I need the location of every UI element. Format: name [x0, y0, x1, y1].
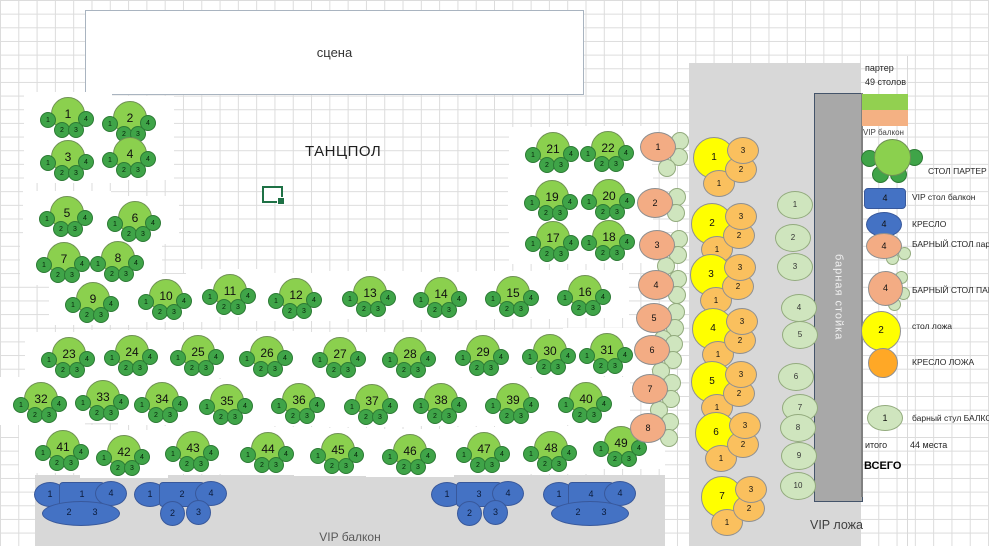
parter-seat[interactable]: 1 — [96, 450, 112, 466]
parter-seat[interactable]: 4 — [451, 397, 467, 413]
parter-seat[interactable]: 4 — [595, 289, 611, 305]
parter-seat[interactable]: 4 — [78, 111, 94, 127]
parter-seat[interactable]: 1 — [268, 293, 284, 309]
parter-seat[interactable]: 4 — [619, 234, 635, 250]
parter-seat[interactable]: 4 — [237, 398, 253, 414]
vip-balcony-seat[interactable]: 2 — [457, 501, 482, 526]
vip-balcony-seat[interactable]: 3 — [483, 500, 508, 525]
legend-item-label: КРЕСЛО ЛОЖА — [912, 358, 974, 367]
parter-seat[interactable]: 1 — [104, 350, 120, 366]
parter-seat[interactable]: 4 — [240, 288, 256, 304]
parter-seat[interactable]: 4 — [74, 256, 90, 272]
parter-seat[interactable]: 4 — [145, 215, 161, 231]
stage-label: сцена — [317, 46, 352, 59]
parter-seat[interactable]: 1 — [485, 398, 501, 414]
parter-seat[interactable]: 4 — [382, 398, 398, 414]
bench-seat-number: 3 — [597, 508, 611, 522]
parter-seat[interactable]: 4 — [103, 296, 119, 312]
bench-seat-number: 3 — [88, 508, 102, 522]
bar-table[interactable]: 5 — [636, 303, 672, 333]
parter-seat[interactable]: 4 — [596, 396, 612, 412]
parter-seat[interactable]: 1 — [41, 352, 57, 368]
parter-seat[interactable]: 4 — [420, 351, 436, 367]
active-cell-selection[interactable] — [262, 186, 283, 203]
bench-seat-number: 2 — [62, 508, 76, 522]
parter-seat[interactable]: 1 — [558, 397, 574, 413]
lodge-chair[interactable]: 3 — [727, 137, 759, 164]
parter-seat[interactable]: 1 — [342, 291, 358, 307]
parter-seat[interactable]: 1 — [199, 399, 215, 415]
parter-seat[interactable]: 1 — [382, 449, 398, 465]
parter-seat[interactable]: 1 — [382, 352, 398, 368]
legend-lodge-table-icon: 2 — [861, 311, 901, 351]
parter-seat[interactable]: 4 — [306, 292, 322, 308]
parter-seat[interactable]: 1 — [35, 445, 51, 461]
parter-seat[interactable]: 1 — [557, 290, 573, 306]
vip-balcony-seat[interactable]: 3 — [186, 500, 211, 525]
legend-item-label: стол ложа — [912, 322, 952, 331]
parter-seat[interactable]: 4 — [350, 351, 366, 367]
parter-seat[interactable]: 4 — [79, 351, 95, 367]
parter-seat[interactable]: 1 — [525, 236, 541, 252]
vip-balcony-bench[interactable] — [551, 501, 629, 526]
vip-lodge-caption: VIP ложа — [810, 519, 863, 532]
parter-seat[interactable]: 4 — [140, 151, 156, 167]
parter-seat[interactable]: 1 — [134, 397, 150, 413]
parter-seat[interactable]: 4 — [172, 396, 188, 412]
bench-seat-number: 2 — [571, 508, 585, 522]
lodge-bar-stool[interactable]: 1 — [777, 191, 813, 219]
parter-seat[interactable]: 1 — [102, 152, 118, 168]
legend-grand-total-label: ВСЕГО — [864, 461, 901, 472]
parter-seat[interactable]: 4 — [134, 449, 150, 465]
legend-lodge-chair-icon — [868, 348, 898, 378]
parter-seat[interactable]: 1 — [13, 397, 29, 413]
parter-seat[interactable]: 1 — [202, 289, 218, 305]
parter-seat[interactable]: 1 — [522, 349, 538, 365]
parter-seat[interactable]: 1 — [455, 350, 471, 366]
parter-seat[interactable]: 1 — [271, 398, 287, 414]
parter-seat[interactable]: 1 — [138, 294, 154, 310]
parter-seat[interactable]: 4 — [277, 350, 293, 366]
lodge-bar-stool[interactable]: 4 — [781, 294, 817, 322]
parter-seat[interactable]: 1 — [107, 216, 123, 232]
bar-table[interactable]: 6 — [634, 335, 670, 365]
bar-counter-label: барная стойка — [833, 254, 845, 340]
parter-seat[interactable]: 4 — [142, 349, 158, 365]
parter-seat[interactable]: 1 — [312, 352, 328, 368]
parter-seat[interactable]: 4 — [451, 291, 467, 307]
legend-swatch-orange — [862, 110, 908, 126]
parter-seat[interactable]: 1 — [170, 350, 186, 366]
legend-count: 49 столов — [865, 78, 906, 87]
parter-seat[interactable]: 4 — [561, 445, 577, 461]
legend-bar-table-icon: 4 — [868, 271, 903, 306]
legend-bar-table-small-icon: 4 — [866, 233, 902, 259]
legend-item-label: БАРНЫЙ СТОЛ партер — [912, 240, 989, 249]
parter-seat[interactable]: 1 — [90, 256, 106, 272]
parter-seat[interactable]: 1 — [524, 195, 540, 211]
parter-seat[interactable]: 1 — [310, 448, 326, 464]
legend-totals-label: итого — [865, 441, 887, 450]
parter-seat[interactable]: 1 — [523, 446, 539, 462]
lodge-chair[interactable]: 3 — [735, 476, 767, 503]
stage-area: сцена — [85, 10, 584, 95]
parter-seat[interactable]: 4 — [619, 193, 635, 209]
lodge-chair[interactable]: 3 — [725, 361, 757, 388]
parter-seat[interactable]: 4 — [78, 154, 94, 170]
parter-seat[interactable]: 4 — [563, 235, 579, 251]
parter-seat[interactable]: 1 — [413, 398, 429, 414]
parter-seat[interactable]: 4 — [562, 194, 578, 210]
legend-item-label: КРЕСЛО — [912, 220, 946, 229]
lodge-chair[interactable]: 3 — [729, 412, 761, 439]
vip-balcony-seat[interactable]: 2 — [160, 501, 185, 526]
vip-balcony-caption: VIP балкон — [35, 531, 665, 543]
parter-seat[interactable]: 1 — [581, 235, 597, 251]
parter-seat[interactable]: 4 — [523, 397, 539, 413]
legend-item-label: VIP стол балкон — [912, 193, 975, 202]
lodge-bar-stool[interactable]: 5 — [782, 321, 818, 349]
parter-seat[interactable]: 1 — [456, 447, 472, 463]
legend-item-label: БАРНЫЙ СТОЛ ПАРТЕР — [912, 286, 989, 295]
legend-title: партер — [865, 64, 894, 73]
parter-seat[interactable]: 1 — [239, 351, 255, 367]
parter-seat[interactable]: 4 — [563, 146, 579, 162]
parter-seat[interactable]: 1 — [581, 194, 597, 210]
bar-table[interactable]: 1 — [640, 132, 676, 162]
parter-seat[interactable]: 4 — [278, 446, 294, 462]
lodge-bar-stool[interactable]: 9 — [781, 442, 817, 470]
parter-seat[interactable]: 4 — [380, 290, 396, 306]
bar-table[interactable]: 7 — [632, 374, 668, 404]
bar-table[interactable]: 4 — [638, 270, 674, 300]
vip-balcony-bench[interactable] — [42, 501, 120, 526]
fill-handle-icon[interactable] — [277, 197, 285, 205]
bar-counter: барная стойка — [814, 93, 863, 502]
legend-totals-value: 44 места — [910, 441, 947, 450]
lodge-bar-stool[interactable]: 8 — [780, 414, 816, 442]
parter-seat[interactable]: 4 — [309, 397, 325, 413]
legend-item-label: СТОЛ ПАРТЕР — [928, 167, 987, 176]
seating-plan-canvas: сцена ТАНЦПОЛ барная стойка VIP балкон V… — [0, 0, 989, 546]
parter-seat[interactable]: 1 — [579, 348, 595, 364]
parter-seat[interactable]: 4 — [203, 445, 219, 461]
parter-seat[interactable]: 1 — [240, 447, 256, 463]
lodge-chair[interactable]: 3 — [724, 254, 756, 281]
parter-seat[interactable]: 4 — [51, 396, 67, 412]
parter-seat[interactable]: 1 — [580, 146, 596, 162]
lodge-bar-stool[interactable]: 3 — [777, 253, 813, 281]
parter-seat[interactable]: 1 — [344, 399, 360, 415]
parter-seat[interactable]: 4 — [73, 444, 89, 460]
parter-seat[interactable]: 4 — [617, 347, 633, 363]
parter-seat[interactable]: 1 — [593, 441, 609, 457]
parter-seat[interactable]: 4 — [208, 349, 224, 365]
lodge-chair[interactable]: 3 — [726, 308, 758, 335]
parter-seat[interactable]: 1 — [165, 446, 181, 462]
bar-table[interactable]: 8 — [630, 413, 666, 443]
parter-seat[interactable]: 4 — [77, 210, 93, 226]
parter-seat[interactable]: 1 — [40, 112, 56, 128]
parter-seat[interactable]: 1 — [102, 116, 118, 132]
lodge-bar-stool[interactable]: 2 — [775, 224, 811, 252]
parter-seat[interactable]: 4 — [523, 290, 539, 306]
parter-seat[interactable]: 1 — [36, 257, 52, 273]
lodge-chair[interactable]: 3 — [725, 203, 757, 230]
parter-seat[interactable]: 1 — [525, 147, 541, 163]
parter-seat[interactable]: 4 — [420, 448, 436, 464]
parter-seat[interactable]: 4 — [176, 293, 192, 309]
legend-vip-table-icon: 4 — [864, 188, 906, 209]
legend-swatch-green — [862, 94, 908, 110]
parter-seat[interactable]: 4 — [140, 115, 156, 131]
legend-item-label: барный стул БАЛКОН — [912, 414, 989, 423]
parter-seat[interactable]: 4 — [348, 447, 364, 463]
parter-seat[interactable]: 4 — [493, 349, 509, 365]
bar-table[interactable]: 3 — [639, 230, 675, 260]
parter-seat[interactable]: 1 — [39, 211, 55, 227]
lodge-bar-stool[interactable]: 10 — [780, 472, 816, 500]
parter-seat[interactable]: 1 — [40, 155, 56, 171]
parter-seat[interactable]: 1 — [485, 291, 501, 307]
legend-column-line — [907, 56, 908, 546]
legend-section-caption: VIP балкон — [863, 129, 904, 137]
bar-table[interactable]: 2 — [637, 188, 673, 218]
parter-seat[interactable]: 1 — [65, 297, 81, 313]
parter-seat[interactable]: 1 — [413, 292, 429, 308]
legend-parter-table-icon — [874, 139, 911, 176]
parter-seat[interactable]: 1 — [75, 395, 91, 411]
dancefloor-label: ТАНЦПОЛ — [305, 144, 381, 159]
parter-seat[interactable]: 4 — [494, 446, 510, 462]
legend-balcony-stool-icon: 1 — [867, 405, 903, 431]
parter-seat[interactable]: 4 — [113, 394, 129, 410]
parter-seat[interactable]: 4 — [560, 348, 576, 364]
parter-seat[interactable]: 4 — [618, 145, 634, 161]
lodge-bar-stool[interactable]: 6 — [778, 363, 814, 391]
parter-seat[interactable]: 4 — [128, 255, 144, 271]
